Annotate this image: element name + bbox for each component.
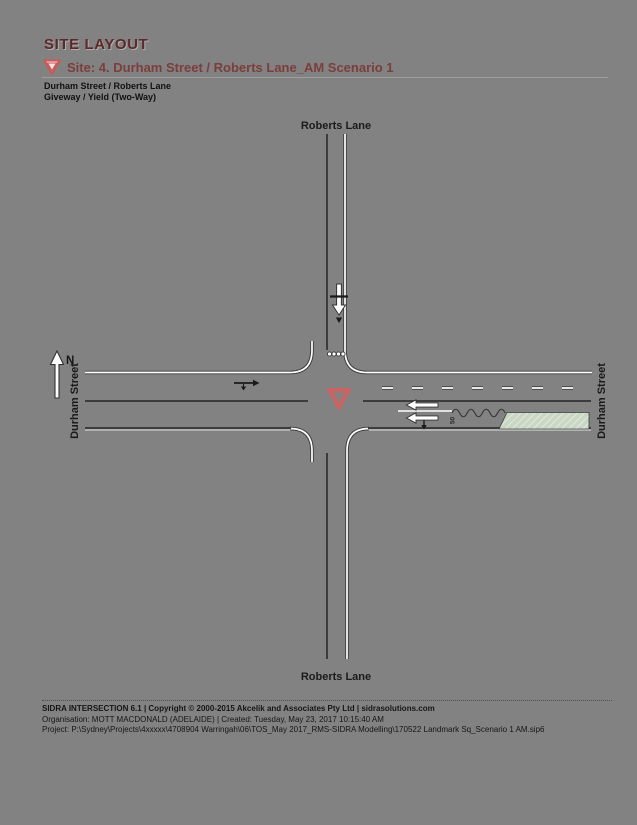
site-header: Site: 4. Durham Street / Roberts Lane_AM…	[42, 58, 394, 76]
giveway-sign-icon	[42, 58, 62, 76]
short-lane-length: 50	[450, 417, 457, 425]
footer-app-line: SIDRA INTERSECTION 6.1 | Copyright © 200…	[42, 704, 612, 715]
road-curb-outlines	[85, 134, 592, 659]
footer-project-line: Project: P:\Sydney\Projects\4xxxxx\47089…	[42, 725, 612, 736]
short-lane-zigzag	[452, 409, 505, 417]
lane-lines	[85, 134, 591, 659]
eastbound-arrow	[234, 380, 260, 391]
short-lane-strip	[499, 413, 589, 430]
intersection-diagram: N Roberts Lane Roberts Lane Durham Stree…	[0, 108, 637, 700]
page-title: SITE LAYOUT	[44, 36, 148, 53]
giveway-triangle	[329, 390, 350, 409]
control-type: Giveway / Yield (Two-Way)	[44, 92, 156, 102]
road-label-west: Durham Street	[69, 363, 81, 439]
road-label-east: Durham Street	[596, 363, 608, 439]
report-footer: SIDRA INTERSECTION 6.1 | Copyright © 200…	[42, 700, 612, 736]
giveway-line-dots	[327, 352, 345, 356]
westbound-turn-arrow	[407, 413, 439, 430]
intersection-name: Durham Street / Roberts Lane	[44, 81, 171, 91]
road-label-north: Roberts Lane	[301, 120, 371, 132]
header-divider	[42, 77, 608, 78]
site-layout-page: SITE LAYOUT Site: 4. Durham Street / Rob…	[0, 0, 637, 825]
site-title: Site: 4. Durham Street / Roberts Lane_AM…	[67, 60, 394, 75]
road-label-south: Roberts Lane	[301, 671, 371, 683]
road-curb-whites	[85, 134, 592, 659]
footer-organisation-line: Organisation: MOTT MACDONALD (ADELAIDE) …	[42, 715, 612, 726]
